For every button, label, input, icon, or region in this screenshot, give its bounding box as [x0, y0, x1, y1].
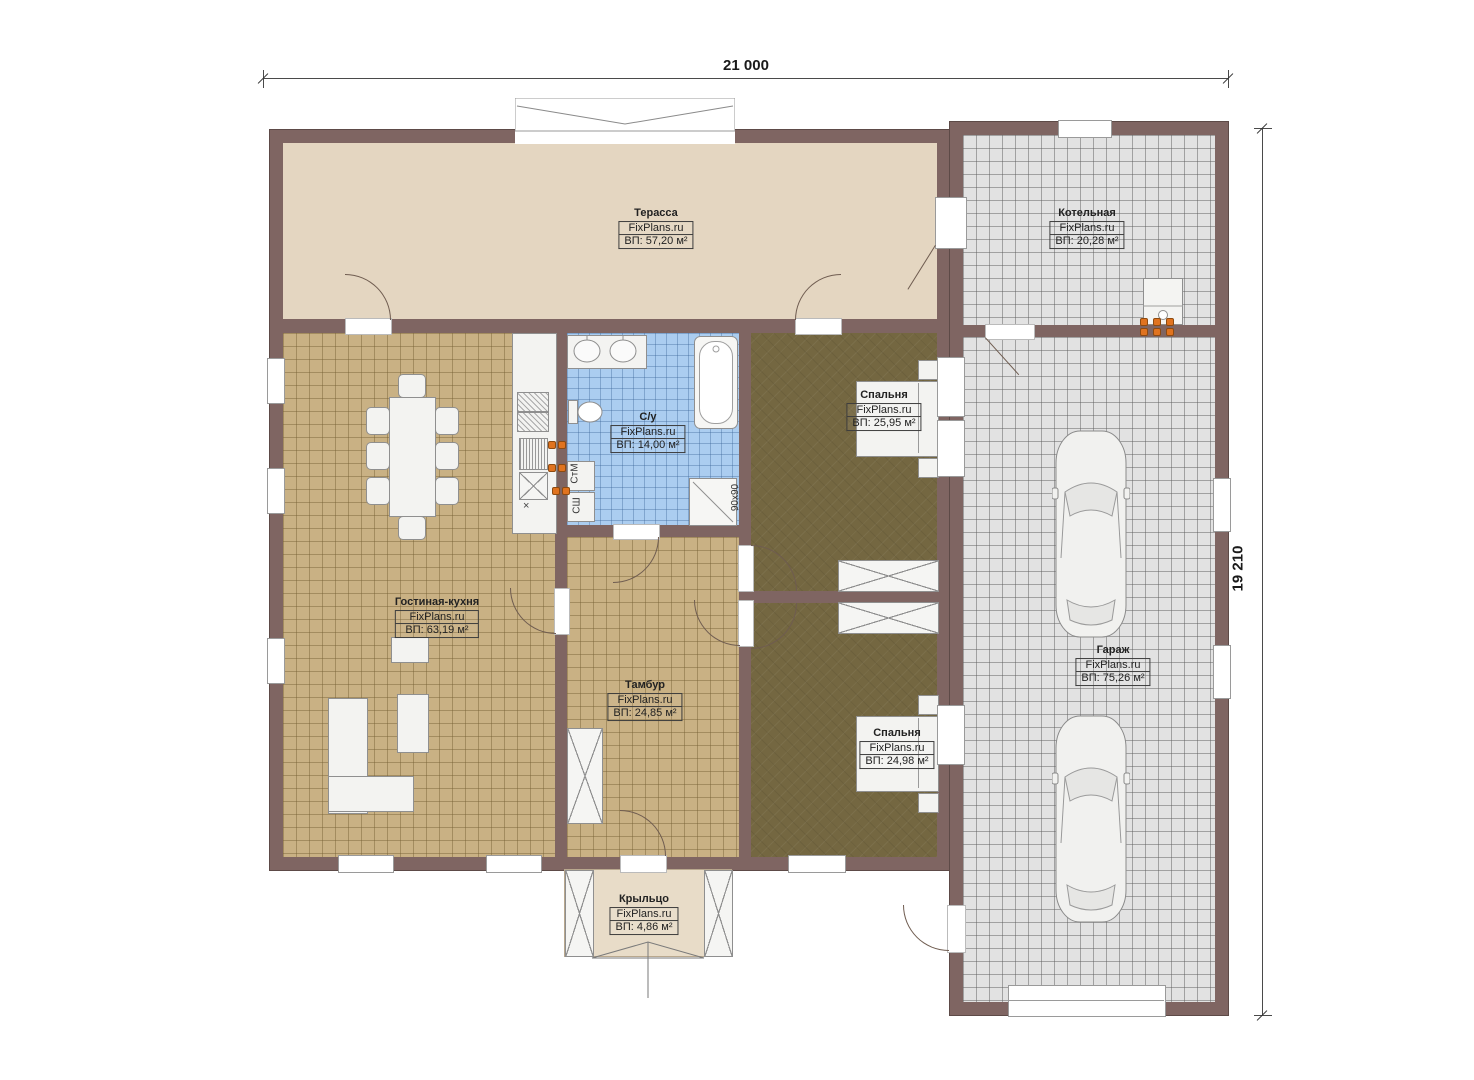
chair — [366, 442, 390, 470]
room-name: Спальня — [859, 727, 934, 740]
dining-table — [389, 397, 436, 517]
floor-plan: 21 000 19 210 — [0, 0, 1474, 1080]
room-area: ВП: 20,28 м² — [1049, 235, 1124, 249]
garage-gate — [1008, 985, 1166, 1017]
double-sink — [567, 335, 645, 367]
door-leaf — [795, 318, 842, 335]
kitchen-marker: × — [523, 500, 529, 512]
room-name: Котельная — [1049, 207, 1124, 220]
wardrobe — [838, 560, 939, 592]
door-leaf — [554, 588, 570, 635]
washing-machine-label: СтМ — [570, 463, 581, 483]
room-name: Гараж — [1075, 644, 1150, 657]
room-label-bath: С/у FixPlans.ru ВП: 14,00 м² — [610, 411, 685, 453]
tv-stand — [391, 637, 429, 663]
room-label-bedroom2: Спальня FixPlans.ru ВП: 24,98 м² — [859, 727, 934, 769]
wall-niche — [937, 357, 965, 417]
chair — [398, 516, 426, 540]
room-label-bedroom1: Спальня FixPlans.ru ВП: 25,95 м² — [846, 389, 921, 431]
room-area: ВП: 24,98 м² — [859, 755, 934, 769]
room-area: ВП: 25,95 м² — [846, 417, 921, 431]
chair — [398, 374, 426, 398]
room-name: Гостиная-кухня — [395, 596, 479, 609]
sofa-horizontal — [328, 776, 414, 812]
outlet-icon — [548, 464, 566, 472]
room-area: ВП: 14,00 м² — [610, 439, 685, 453]
room-name: Тамбур — [607, 679, 682, 692]
window — [338, 855, 394, 873]
stove — [519, 438, 548, 470]
chair — [366, 407, 390, 435]
window — [1058, 120, 1112, 138]
room-name: С/у — [610, 411, 685, 424]
window — [1213, 645, 1231, 699]
garage-gate-line — [1008, 1000, 1164, 1001]
car-2 — [1052, 713, 1130, 925]
wardrobe — [838, 602, 939, 634]
watermark: FixPlans.ru — [610, 425, 685, 440]
watermark: FixPlans.ru — [1049, 221, 1124, 236]
window — [267, 638, 285, 684]
room-label-living: Гостиная-кухня FixPlans.ru ВП: 63,19 м² — [395, 596, 479, 638]
porch-steps — [565, 870, 731, 1002]
watermark: FixPlans.ru — [607, 693, 682, 708]
watermark: FixPlans.ru — [395, 610, 479, 625]
room-label-porch: Крыльцо FixPlans.ru ВП: 4,86 м² — [609, 893, 678, 935]
chair — [435, 477, 459, 505]
door-leaf — [985, 324, 1035, 340]
nightstand — [918, 360, 939, 380]
nightstand — [918, 458, 939, 478]
chair — [435, 407, 459, 435]
room-name: Терасса — [618, 207, 693, 220]
window — [1213, 478, 1231, 532]
room-area: ВП: 24,85 м² — [607, 707, 682, 721]
car-1 — [1052, 428, 1130, 640]
outlet-icon — [1140, 318, 1148, 336]
bathtub — [694, 336, 738, 429]
kitchen-counter — [512, 333, 557, 534]
room-label-boiler: Котельная FixPlans.ru ВП: 20,28 м² — [1049, 207, 1124, 249]
window — [267, 358, 285, 404]
watermark: FixPlans.ru — [846, 403, 921, 418]
watermark: FixPlans.ru — [1075, 658, 1150, 673]
dimension-line-right — [1262, 128, 1263, 1015]
watermark: FixPlans.ru — [859, 741, 934, 756]
room-name: Спальня — [846, 389, 921, 402]
room-area: ВП: 75,26 м² — [1075, 672, 1150, 686]
dimension-line-top — [263, 78, 1229, 79]
shower-size-label: 90х90 — [730, 484, 741, 511]
toilet — [568, 397, 604, 427]
kitchen-sink-unit — [517, 392, 549, 412]
room-area: ВП: 63,19 м² — [395, 624, 479, 638]
room-floor-bedroom1 — [751, 333, 937, 591]
chair — [435, 442, 459, 470]
window — [788, 855, 846, 873]
watermark: FixPlans.ru — [609, 907, 678, 922]
terrace-steps — [515, 98, 735, 132]
window-terrace-boiler — [935, 197, 967, 249]
nightstand — [918, 695, 939, 715]
oven — [519, 472, 548, 500]
room-label-tambour: Тамбур FixPlans.ru ВП: 24,85 м² — [607, 679, 682, 721]
window — [486, 855, 542, 873]
wall-niche — [937, 705, 965, 765]
nightstand — [918, 793, 939, 813]
kitchen-sink-unit — [517, 412, 549, 432]
door-arc — [903, 905, 949, 951]
dimension-right-value: 19 210 — [1229, 546, 1246, 592]
wall-niche — [937, 420, 965, 477]
watermark: FixPlans.ru — [618, 221, 693, 236]
room-label-terrace: Терасса FixPlans.ru ВП: 57,20 м² — [618, 207, 693, 249]
room-name: Крыльцо — [609, 893, 678, 906]
coffee-table — [397, 694, 429, 753]
door-leaf — [947, 905, 966, 953]
room-area: ВП: 57,20 м² — [618, 235, 693, 249]
wardrobe — [567, 728, 603, 824]
room-area: ВП: 4,86 м² — [609, 921, 678, 935]
chair — [366, 477, 390, 505]
room-label-garage: Гараж FixPlans.ru ВП: 75,26 м² — [1075, 644, 1150, 686]
outlet-icon — [552, 487, 570, 495]
outlet-icon — [548, 441, 566, 449]
outlet-icon — [1166, 318, 1174, 336]
boiler-unit — [1143, 278, 1183, 325]
window — [267, 468, 285, 514]
outlet-icon — [1153, 318, 1161, 336]
dryer-label: СШ — [572, 497, 583, 513]
door-leaf — [345, 318, 392, 335]
dimension-top-value: 21 000 — [263, 57, 1229, 74]
